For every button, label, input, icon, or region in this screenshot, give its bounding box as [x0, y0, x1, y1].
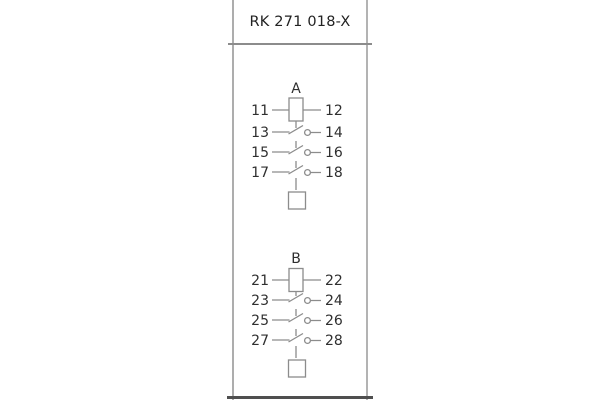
section-b: B 21 22 23 24 25 26: [251, 251, 343, 377]
panel-bottom-edge: [227, 396, 373, 399]
terminal-number: 18: [325, 165, 343, 181]
coil-symbol-a: [272, 98, 321, 121]
terminal-number: 26: [325, 313, 343, 329]
armature-box-b: [289, 360, 306, 377]
terminal-number: 16: [325, 145, 343, 161]
section-a: A 11 12 13 14 15 16: [251, 81, 343, 209]
terminal-number: 14: [325, 125, 343, 141]
terminal-number: 28: [325, 333, 343, 349]
terminal-number: 11: [251, 103, 269, 119]
relay-schematic-page: RK 271 018-X A 11 12 13 14: [0, 0, 600, 400]
terminal-number: 27: [251, 333, 269, 349]
terminal-number: 12: [325, 103, 343, 119]
terminal-number: 23: [251, 293, 269, 309]
terminal-number: 13: [251, 125, 269, 141]
terminal-number: 15: [251, 145, 269, 161]
terminal-number: 21: [251, 273, 269, 289]
terminal-number: 24: [325, 293, 343, 309]
terminal-number: 22: [325, 273, 343, 289]
coil-symbol-b: [272, 269, 321, 292]
section-b-label: B: [291, 251, 301, 267]
schematic-drawing: A 11 12 13 14 15 16: [233, 0, 366, 396]
armature-box-a: [289, 192, 306, 209]
section-a-label: A: [291, 81, 301, 97]
terminal-number: 25: [251, 313, 269, 329]
terminal-number: 17: [251, 165, 269, 181]
